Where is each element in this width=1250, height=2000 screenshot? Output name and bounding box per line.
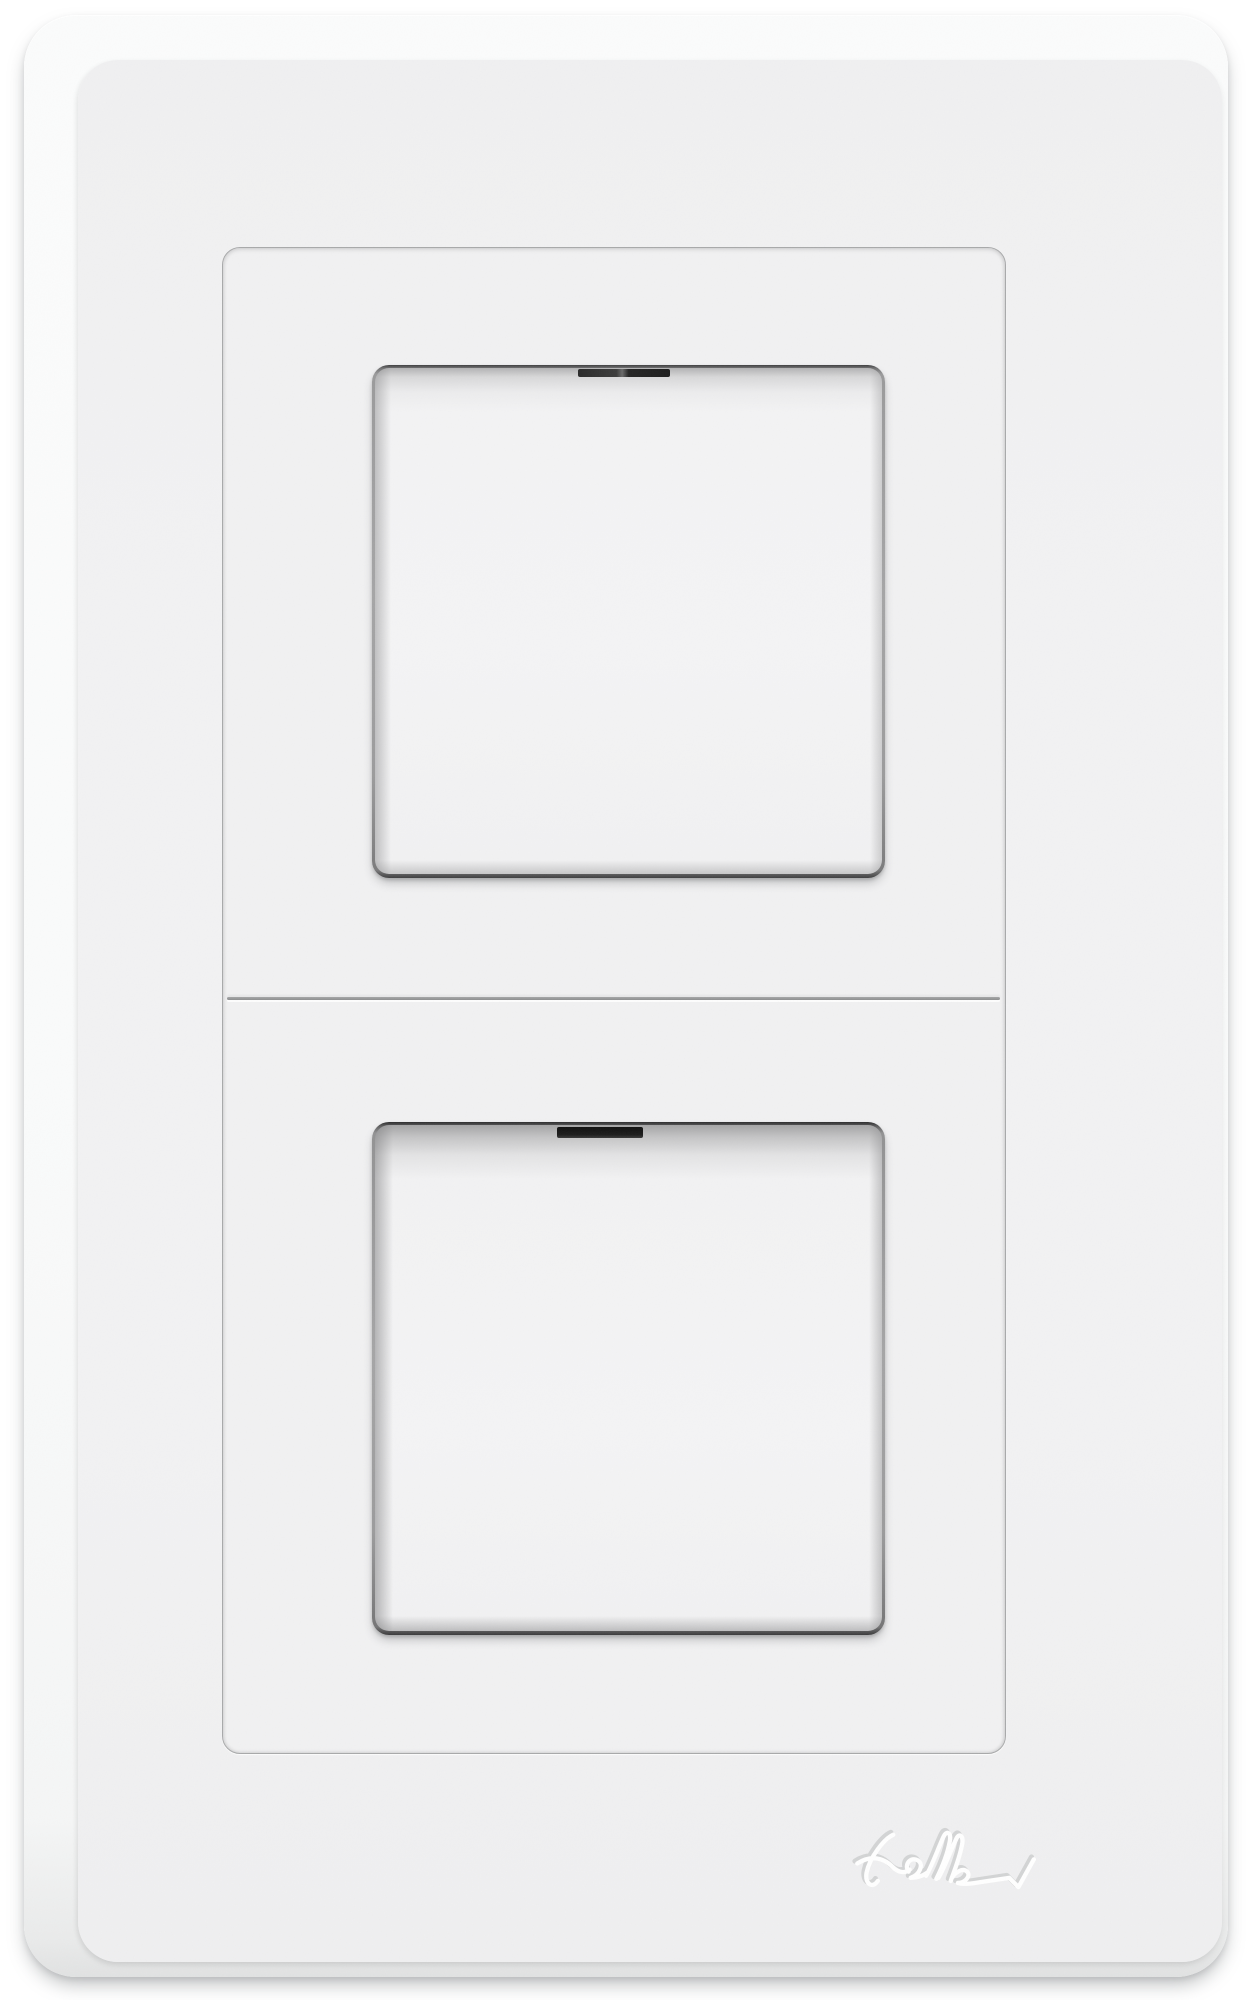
rocker-button-top[interactable] [375,368,882,874]
rocker-slot-bottom-icon [557,1127,643,1138]
frame-divider [227,997,1000,1000]
photo-background: Feller [0,0,1250,2000]
rocker-slot-top-icon [578,369,670,377]
rocker-button-bottom[interactable] [375,1125,882,1631]
rocker-switch-bottom[interactable] [372,1122,885,1635]
rocker-switch-top[interactable] [372,365,885,878]
feller-logo-icon: Feller [845,1826,1040,1904]
